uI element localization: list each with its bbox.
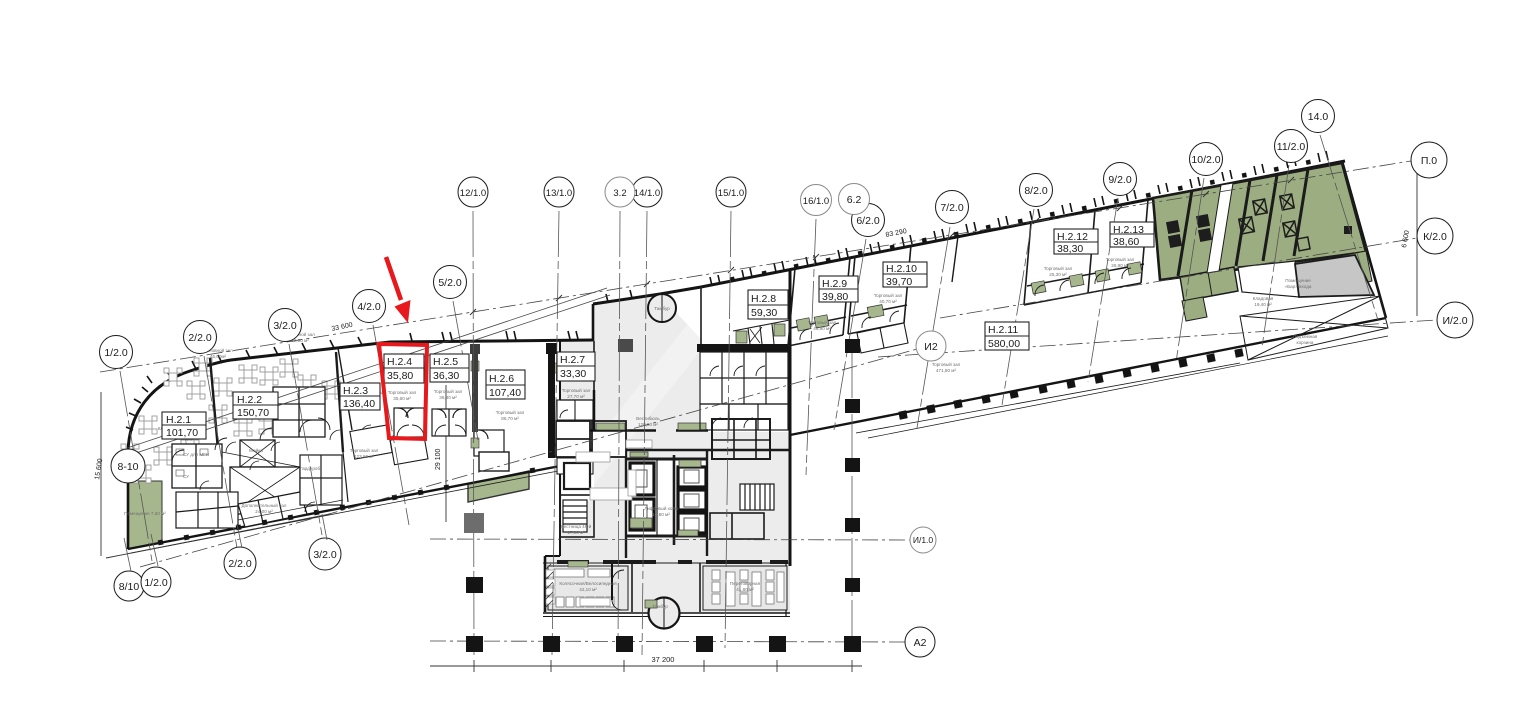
svg-text:Помещение: Помещение xyxy=(1285,278,1311,283)
svg-text:Лестница 46-й: Лестница 46-й xyxy=(561,523,592,529)
svg-text:1/2.0: 1/2.0 xyxy=(144,577,168,589)
svg-text:8/2.0: 8/2.0 xyxy=(1024,185,1048,197)
svg-text:15/1.0: 15/1.0 xyxy=(718,188,744,199)
svg-text:11/2.0: 11/2.0 xyxy=(1277,141,1306,153)
svg-text:3/2.0: 3/2.0 xyxy=(313,549,337,561)
svg-text:5/2.0: 5/2.0 xyxy=(438,277,462,289)
svg-text:Н.2.2: Н.2.2 xyxy=(237,394,262,406)
svg-text:Торговый зал: Торговый зал xyxy=(434,388,463,394)
svg-text:СУ для МГН: СУ для МГН xyxy=(183,452,209,457)
svg-text:29 100: 29 100 xyxy=(435,448,442,470)
svg-text:10/2.0: 10/2.0 xyxy=(1191,154,1220,166)
svg-text:Торговый зал: Торговый зал xyxy=(350,447,379,453)
svg-text:Гардероб: Гардероб xyxy=(300,466,321,471)
svg-text:СУ: СУ xyxy=(183,474,189,479)
svg-text:Вестибюль: Вестибюль xyxy=(636,416,660,421)
svg-text:14/1.0: 14/1.0 xyxy=(634,188,660,199)
svg-text:Торговый зал: Торговый зал xyxy=(1044,265,1073,271)
svg-text:107,40: 107,40 xyxy=(489,387,521,399)
svg-text:2/2.0: 2/2.0 xyxy=(188,332,212,344)
svg-text:40,70 м²: 40,70 м² xyxy=(879,299,897,304)
svg-text:И2: И2 xyxy=(924,341,938,353)
svg-text:39,80: 39,80 xyxy=(822,291,848,303)
svg-text:Н.2.8: Н.2.8 xyxy=(751,293,776,305)
svg-text:3/2.0: 3/2.0 xyxy=(273,320,297,332)
svg-text:Н.2.10: Н.2.10 xyxy=(886,263,917,275)
svg-text:42,10 м²: 42,10 м² xyxy=(579,587,597,592)
svg-text:И/2.0: И/2.0 xyxy=(1442,315,1467,327)
svg-text:6.2: 6.2 xyxy=(847,194,862,206)
svg-text:19,40 м²: 19,40 м² xyxy=(1254,302,1272,307)
svg-text:2/2.0: 2/2.0 xyxy=(228,558,252,570)
svg-text:4/2.0: 4/2.0 xyxy=(357,301,381,313)
svg-text:36,30 м²: 36,30 м² xyxy=(439,395,457,400)
svg-text:Тамбур: Тамбур xyxy=(652,604,668,609)
svg-text:36,30: 36,30 xyxy=(433,370,459,382)
svg-text:7/2.0: 7/2.0 xyxy=(940,202,964,214)
svg-text:101,70: 101,70 xyxy=(166,427,198,439)
svg-text:16/1.0: 16/1.0 xyxy=(803,196,829,207)
svg-text:24,00 м²: 24,00 м² xyxy=(255,509,273,514)
svg-text:86,70 м²: 86,70 м² xyxy=(501,416,519,421)
svg-text:Мойка: Мойка xyxy=(249,447,263,453)
svg-text:12/1.0: 12/1.0 xyxy=(460,188,486,199)
svg-text:9/2.0: 9/2.0 xyxy=(1108,174,1132,186)
svg-text:16,80 м²: 16,80 м² xyxy=(652,512,670,517)
svg-text:17,00 м²: 17,00 м² xyxy=(567,530,585,535)
svg-text:К/2.0: К/2.0 xyxy=(1423,231,1447,243)
svg-text:корзина: корзина xyxy=(1297,340,1314,345)
svg-text:Торговый зал: Торговый зал xyxy=(496,409,525,415)
svg-text:Торговый зал: Торговый зал xyxy=(874,292,903,298)
svg-text:Торговый зал: Торговый зал xyxy=(388,389,417,395)
svg-text:3.2: 3.2 xyxy=(613,188,626,199)
svg-text:Колясочная/Велосипедная: Колясочная/Велосипедная xyxy=(559,581,617,586)
svg-text:И/1.0: И/1.0 xyxy=(913,535,934,545)
svg-text:39,70: 39,70 xyxy=(886,276,912,288)
svg-text:Н.2.9: Н.2.9 xyxy=(822,278,847,290)
svg-text:А2: А2 xyxy=(914,637,927,649)
svg-text:Н.2.4: Н.2.4 xyxy=(387,356,412,368)
svg-text:45,90 м²: 45,90 м² xyxy=(813,326,831,331)
svg-text:150,70: 150,70 xyxy=(237,407,269,419)
svg-text:Н.2.5: Н.2.5 xyxy=(433,356,458,368)
svg-text:Подъемная: Подъемная xyxy=(1293,334,1318,339)
svg-text:П.0: П.0 xyxy=(1421,155,1437,167)
svg-text:Н.2.6: Н.2.6 xyxy=(489,373,514,385)
svg-text:37 200: 37 200 xyxy=(652,655,675,664)
svg-text:123,60 м²: 123,60 м² xyxy=(354,454,374,459)
svg-text:Н.2.7: Н.2.7 xyxy=(560,354,585,366)
svg-text:Н.2.1: Н.2.1 xyxy=(166,414,191,426)
svg-text:38,60: 38,60 xyxy=(1113,236,1139,248)
svg-text:Торговый зал: Торговый зал xyxy=(1106,256,1135,262)
svg-text:41,80 м²: 41,80 м² xyxy=(736,587,754,592)
svg-text:33,30: 33,30 xyxy=(560,368,586,380)
svg-text:Н.2.3: Н.2.3 xyxy=(343,385,368,397)
svg-text:Дополнительный зал: Дополнительный зал xyxy=(242,502,287,508)
svg-text:Н.2.11: Н.2.11 xyxy=(988,324,1018,336)
svg-text:46,00м²: 46,00м² xyxy=(210,354,227,359)
svg-text:«Бар» входа: «Бар» входа xyxy=(1285,284,1312,289)
svg-text:27,70 м²: 27,70 м² xyxy=(567,394,585,399)
svg-text:1/2.0: 1/2.0 xyxy=(104,347,128,359)
svg-text:59,30: 59,30 xyxy=(751,307,777,319)
svg-text:35,80: 35,80 xyxy=(387,370,413,382)
svg-text:14.0: 14.0 xyxy=(1308,111,1329,123)
svg-text:Лифтовый холл: Лифтовый холл xyxy=(644,505,678,511)
svg-text:580,00: 580,00 xyxy=(988,338,1020,350)
svg-text:25,30 м²: 25,30 м² xyxy=(1049,272,1067,277)
svg-text:Переговорная: Переговорная xyxy=(730,581,761,586)
svg-text:471,80 м²: 471,80 м² xyxy=(936,368,956,373)
svg-text:38,30: 38,30 xyxy=(1057,243,1083,255)
svg-text:Торговый зал: Торговый зал xyxy=(932,361,961,367)
svg-text:8-10: 8-10 xyxy=(117,461,138,473)
svg-text:136,40: 136,40 xyxy=(343,398,375,410)
svg-text:Торговый зал: Торговый зал xyxy=(562,387,591,393)
svg-text:35,60 м²: 35,60 м² xyxy=(393,396,411,401)
svg-text:13/1.0: 13/1.0 xyxy=(546,188,572,199)
svg-text:Тамбур: Тамбур xyxy=(654,306,670,311)
svg-text:26,90 м²: 26,90 м² xyxy=(1111,263,1129,268)
svg-text:8/10: 8/10 xyxy=(119,581,140,593)
svg-text:Кладовая: Кладовая xyxy=(1253,296,1274,301)
svg-text:6/2.0: 6/2.0 xyxy=(856,215,880,227)
svg-text:Н.2.12: Н.2.12 xyxy=(1057,231,1088,243)
svg-text:Помещение 7,60 м²: Помещение 7,60 м² xyxy=(124,511,166,516)
